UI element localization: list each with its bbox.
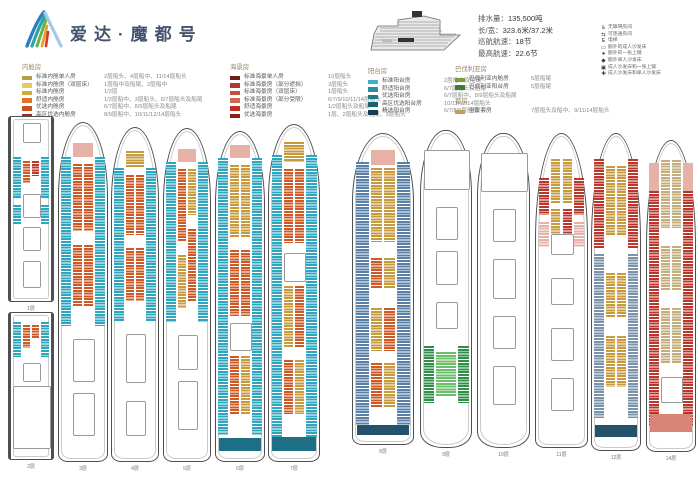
deck-label: 12层: [591, 454, 641, 461]
symbol-legend-label: 电梯: [608, 38, 618, 45]
cabin-block: [23, 161, 30, 183]
deck-label: 11层: [535, 451, 588, 458]
cabin-block: [73, 143, 92, 157]
symbol-legend-row: ✚成人沙发床和单人沙发床: [599, 71, 661, 78]
legend-group-title: 巴伐利亚房: [455, 64, 551, 73]
cabin-block: [41, 157, 49, 197]
cabin-block: [661, 160, 670, 228]
cabin-block: [551, 159, 560, 203]
legend-deck-desc: 2层船头、4层船中、11/14层船头: [104, 74, 187, 82]
legend-row: 全景套房7层船头及船中、9/11/14层船头: [455, 108, 610, 116]
cabin-block: [41, 322, 49, 357]
legend-room-label: 精选阳台房: [382, 108, 438, 116]
cabin-block: [13, 322, 21, 357]
cabin-block: [436, 352, 456, 396]
cabin-block: [672, 160, 681, 228]
cabin-block: [371, 258, 382, 289]
ship-profile-illustration: [368, 8, 464, 63]
legend-color-swatch: [368, 95, 378, 100]
cabin-block: [683, 191, 693, 427]
cabin-block: [606, 273, 615, 317]
cabin-block: [617, 336, 626, 387]
cabin-block: [230, 145, 249, 158]
legend-color-swatch: [368, 87, 378, 92]
upper-berth-icon: ●: [599, 51, 608, 58]
sofa-bed-icon: ▭: [599, 45, 608, 52]
cabin-block: [628, 159, 638, 247]
cabin-block: [551, 328, 573, 361]
cabin-block: [594, 254, 604, 418]
cabin-block: [219, 438, 261, 451]
cabin-block: [595, 425, 637, 438]
legend-group: 内舱房标准内舱单人房2层船头、4层船中、11/14层船头标准内舱房（双层床）1层…: [22, 62, 203, 120]
cabin-block: [218, 158, 228, 434]
cabin-block: [23, 123, 41, 143]
legend-color-swatch: [368, 102, 378, 107]
deck-plan: [58, 122, 108, 462]
cabin-block: [32, 325, 39, 340]
spec-row: 排水量：135,500吨: [478, 13, 553, 25]
cabin-block: [178, 149, 196, 162]
cabin-block: [295, 286, 304, 346]
symbol-legend-label: 无障碍房间: [608, 25, 632, 32]
cabin-block: [594, 159, 604, 247]
legend-deck-desc: 7层船头及船中、9/11/14层船头: [531, 108, 610, 116]
cabin-block: [230, 250, 239, 316]
deck-label: 8层: [352, 448, 414, 455]
legend-room-label: 巴伐利亚阳台房: [469, 84, 525, 92]
cabin-block: [436, 251, 458, 285]
legend-deck-desc: 1/2层船头及船尾: [328, 104, 370, 112]
cabin-block: [13, 205, 21, 223]
deck-plan: [535, 133, 588, 448]
legend-row: 巴伐利亚内舱房5层船尾: [455, 76, 551, 84]
symbol-legend-row: ♿无障碍房间: [599, 25, 661, 32]
cabin-block: [126, 334, 146, 383]
cabin-block: [661, 246, 670, 289]
cabin-block: [436, 207, 458, 241]
cabin-block: [295, 169, 304, 243]
cabin-block: [672, 308, 681, 364]
cabin-block: [178, 255, 186, 308]
cabin-block: [551, 278, 573, 305]
cabin-block: [284, 286, 293, 346]
cabin-block: [241, 356, 250, 415]
deck-label: 3层: [58, 465, 108, 472]
cabin-block: [13, 386, 50, 449]
legend-deck-desc: 6/7层船中、8/9层船头及船尾: [104, 104, 177, 112]
deck-plan: [477, 133, 530, 448]
cabin-block: [146, 168, 156, 321]
cabin-block: [284, 169, 293, 243]
cabin-block: [23, 363, 41, 383]
legend-group: 巴伐利亚房巴伐利亚内舱房5层船尾巴伐利亚阳台房5层船尾: [455, 64, 551, 91]
deck-label: 4层: [111, 465, 159, 472]
legend-color-swatch: [22, 76, 32, 81]
cabin-block: [371, 168, 382, 242]
cabin-block: [198, 162, 208, 321]
cabin-block: [661, 377, 682, 404]
cabin-block: [61, 157, 71, 326]
legend-room-label: 优选内舱房: [36, 104, 98, 112]
cabin-block: [178, 335, 198, 370]
connecting-rooms-icon: ⇆: [599, 32, 608, 39]
symbol-legend-label: 额外的一张上铺: [608, 51, 642, 58]
deck-plan: [111, 127, 159, 462]
cabin-block: [230, 323, 251, 351]
cabin-block: [481, 153, 528, 193]
cabin-block: [661, 308, 670, 364]
cabin-block: [551, 209, 560, 234]
legend-deck-desc: 1层船头: [328, 89, 348, 97]
spec-row: 长/宽：323.6米/37.2米: [478, 25, 553, 37]
cabin-block: [617, 273, 626, 317]
deck-label: 6层: [215, 465, 265, 472]
spec-value: 18节: [516, 37, 532, 46]
cabin-block: [493, 259, 515, 299]
legend-room-label: 全景套房: [469, 108, 525, 116]
cabin-block: [424, 150, 470, 190]
legend-room-label: 标准内舱单人房: [36, 74, 98, 82]
legend-color-swatch: [230, 83, 240, 88]
cabin-block: [436, 302, 458, 329]
legend-color-swatch: [368, 80, 378, 85]
deck-plan: [646, 140, 696, 452]
cabin-block: [371, 363, 382, 406]
legend-color-swatch: [230, 114, 240, 119]
wheelchair-icon: ♿: [599, 25, 608, 32]
cabin-block: [23, 261, 41, 289]
deck-label: 7层: [268, 465, 320, 472]
spec-label: 最高航速：: [478, 49, 516, 58]
cabin-block: [295, 360, 304, 414]
spec-label: 长/宽：: [478, 26, 503, 35]
spec-label: 排水量：: [478, 14, 508, 23]
symbol-legend-row: E电梯: [599, 38, 661, 45]
legend-deck-desc: 10层船头: [328, 74, 351, 82]
cabin-block: [539, 178, 550, 216]
cabin-block: [371, 150, 395, 166]
legend-room-label: 巴伐利亚内舱房: [469, 76, 525, 84]
spec-value: 323.6米/37.2米: [503, 26, 553, 35]
cabin-block: [284, 253, 306, 282]
cabin-block: [357, 425, 410, 434]
cabin-block: [136, 248, 144, 301]
cabin-block: [178, 381, 198, 429]
legend-color-swatch: [22, 91, 32, 96]
cabin-block: [551, 234, 573, 255]
legend-room-label: 标准阳台房: [382, 78, 438, 86]
cabin-block: [114, 168, 124, 321]
cabin-block: [539, 222, 550, 247]
ship-specs-list: 排水量：135,500吨长/宽：323.6米/37.2米巡航航速：18节最高航速…: [478, 13, 553, 59]
cabin-block: [306, 155, 317, 437]
cabin-block: [284, 360, 293, 414]
single-sofa-bed-icon: ◆: [599, 58, 608, 65]
legend-row: 优选内舱房6/7层船中、8/9层船头及船尾: [22, 104, 203, 112]
cabin-block: [84, 164, 93, 232]
legend-room-label: 舒适海景房: [244, 104, 322, 112]
cabin-block: [563, 159, 572, 203]
cabin-block: [23, 227, 41, 251]
deck-plan: [215, 131, 265, 462]
cabin-block: [23, 194, 41, 218]
cabin-block: [136, 175, 144, 235]
cabin-block: [241, 165, 250, 237]
cabin-block: [84, 245, 93, 306]
cabin-block: [73, 339, 94, 382]
legend-room-label: 标准海景房（双层床）: [244, 89, 322, 97]
cabin-block: [424, 346, 435, 403]
deck-label: 10层: [477, 451, 530, 458]
cabin-block: [606, 336, 615, 387]
cabin-block: [241, 250, 250, 316]
cabin-block: [126, 248, 134, 301]
legend-room-label: 标准内舱房: [36, 89, 98, 97]
cabin-block: [574, 222, 585, 247]
legend-room-label: 优选阳台房: [382, 93, 438, 101]
cabin-block: [178, 169, 186, 242]
legend-color-swatch: [368, 110, 378, 115]
deck-label: 9层: [420, 451, 472, 458]
legend-color-swatch: [455, 110, 465, 115]
spec-value: 135,500吨: [508, 14, 543, 23]
cabin-block: [384, 363, 395, 406]
deck-label: 5层: [163, 465, 211, 472]
cabin-block: [32, 161, 39, 176]
cabin-block: [95, 157, 105, 326]
cabin-block: [230, 165, 239, 237]
cabin-block: [617, 166, 626, 236]
cabin-block: [23, 325, 30, 348]
legend-room-label: 标准海景单人房: [244, 74, 322, 82]
legend-row: 标准内舱房1/2层: [22, 89, 203, 97]
symbol-legend-row: ◆额外单人沙发床: [599, 58, 661, 65]
legend-group: 套房全景套房7层船头及船中、9/11/14层船头: [455, 96, 610, 116]
legend-row: 巴伐利亚阳台房5层船尾: [455, 84, 551, 92]
cabin-block: [13, 157, 21, 197]
legend-color-swatch: [22, 98, 32, 103]
cabin-block: [493, 209, 515, 242]
cabin-block: [126, 151, 144, 168]
deck-plan: [8, 312, 54, 460]
cabin-block: [493, 366, 515, 406]
adora-logo: [24, 8, 66, 52]
deck-label: 1层: [8, 305, 54, 312]
cabin-block: [126, 401, 146, 436]
deck-plan: [8, 116, 54, 302]
cabin-block: [230, 356, 239, 415]
legend-group-title: 套房: [455, 96, 610, 105]
cabin-block: [397, 162, 410, 426]
cabin-block: [252, 158, 262, 434]
cabin-block: [371, 308, 382, 351]
cabin-block: [384, 258, 395, 289]
legend-color-swatch: [230, 106, 240, 111]
sofa-and-single-icon: ✚: [599, 71, 608, 78]
spec-value: 22.6节: [516, 49, 538, 58]
legend-deck-desc: 8/9层船中、10/11/12/14层船头: [104, 112, 181, 120]
cabin-block: [672, 246, 681, 289]
symbol-legend-label: 额外单人沙发床: [608, 58, 642, 65]
elevator-icon: E: [599, 38, 608, 45]
legend-deck-desc: 5层船尾: [531, 76, 551, 84]
cabin-block: [574, 178, 585, 216]
cabin-block: [649, 191, 659, 427]
deck-plan: [163, 128, 211, 462]
ship-name-title: 爱达·魔都号: [70, 20, 203, 45]
cabin-block: [284, 142, 304, 162]
symbol-legend-label: 成人沙发床和单人沙发床: [608, 71, 661, 78]
cabin-block: [606, 166, 615, 236]
cabin-block: [272, 155, 283, 437]
cabin-block: [563, 209, 572, 234]
cabin-block: [356, 162, 369, 426]
sofa-and-berth-icon: ▣: [599, 65, 608, 72]
cabin-block: [458, 346, 469, 403]
spec-label: 巡航航速：: [478, 37, 516, 46]
cabin-block: [649, 163, 659, 191]
legend-row: 标准内舱单人房2层船头、4层船中、11/14层船头: [22, 74, 203, 82]
legend-room-label: 优选海景房: [244, 112, 322, 120]
cabin-block: [41, 205, 49, 223]
deck-plan: [352, 133, 414, 445]
cabin-block: [384, 168, 395, 242]
deck-plan: [591, 133, 641, 451]
cabin-block: [628, 254, 638, 418]
legend-color-swatch: [230, 76, 240, 81]
cabin-block: [188, 229, 196, 302]
legend-color-swatch: [230, 98, 240, 103]
cabin-block: [650, 414, 692, 433]
cabin-block: [166, 162, 176, 321]
cabin-block: [73, 164, 82, 232]
cabin-block: [126, 175, 134, 235]
deck-label: 14层: [646, 455, 696, 462]
symbol-legend: ♿无障碍房间⇆可连通房间E电梯▭额外的成人沙发床●额外的一张上铺◆额外单人沙发床…: [599, 25, 661, 78]
cabin-block: [73, 393, 94, 436]
legend-color-swatch: [455, 85, 465, 90]
legend-color-swatch: [455, 78, 465, 83]
cabin-block: [551, 378, 573, 411]
legend-deck-desc: 5层船尾: [531, 84, 551, 92]
legend-group-title: 内舱房: [22, 62, 203, 71]
legend-color-swatch: [22, 106, 32, 111]
spec-row: 最高航速：22.6节: [478, 48, 553, 60]
cabin-block: [493, 316, 515, 349]
deck-plan: [420, 130, 472, 448]
cabin-block: [384, 308, 395, 351]
cabin-block: [188, 169, 196, 215]
legend-color-swatch: [22, 83, 32, 88]
cabin-block: [683, 163, 693, 191]
deck-label: 2层: [8, 463, 54, 470]
deck-plan: [268, 124, 320, 462]
spec-row: 巡航航速：18节: [478, 36, 553, 48]
cabin-block: [272, 437, 316, 450]
symbol-legend-row: ●额外的一张上铺: [599, 51, 661, 58]
legend-color-swatch: [230, 91, 240, 96]
legend-deck-desc: 1/2层: [104, 89, 118, 97]
cabin-block: [73, 245, 82, 306]
